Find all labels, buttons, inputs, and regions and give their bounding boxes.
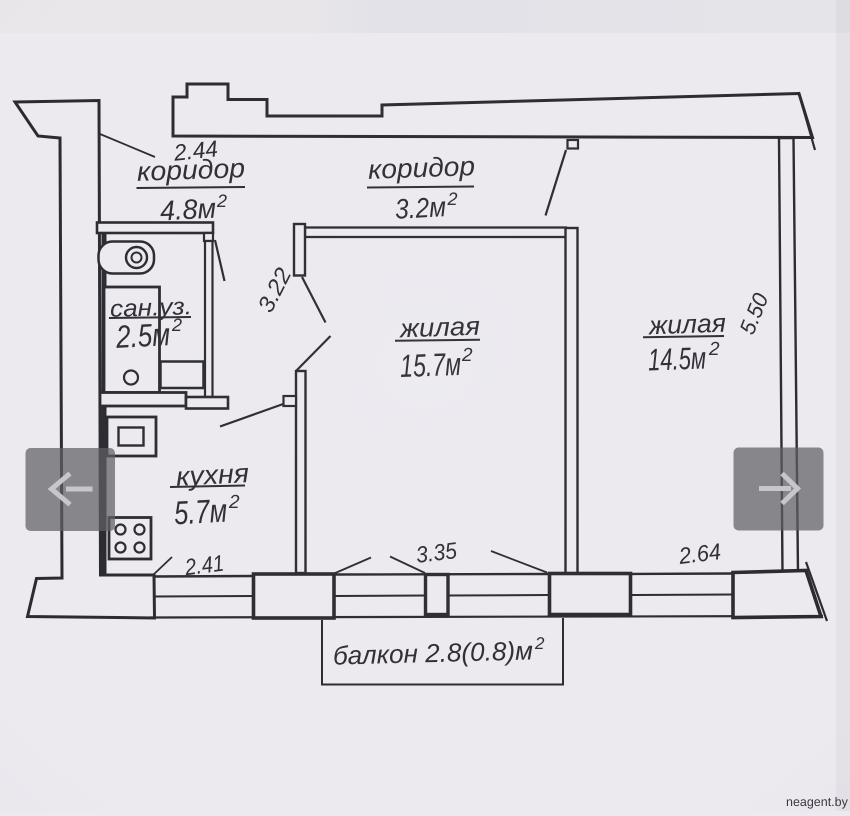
svg-text:neagent.by: neagent.by — [786, 795, 849, 809]
